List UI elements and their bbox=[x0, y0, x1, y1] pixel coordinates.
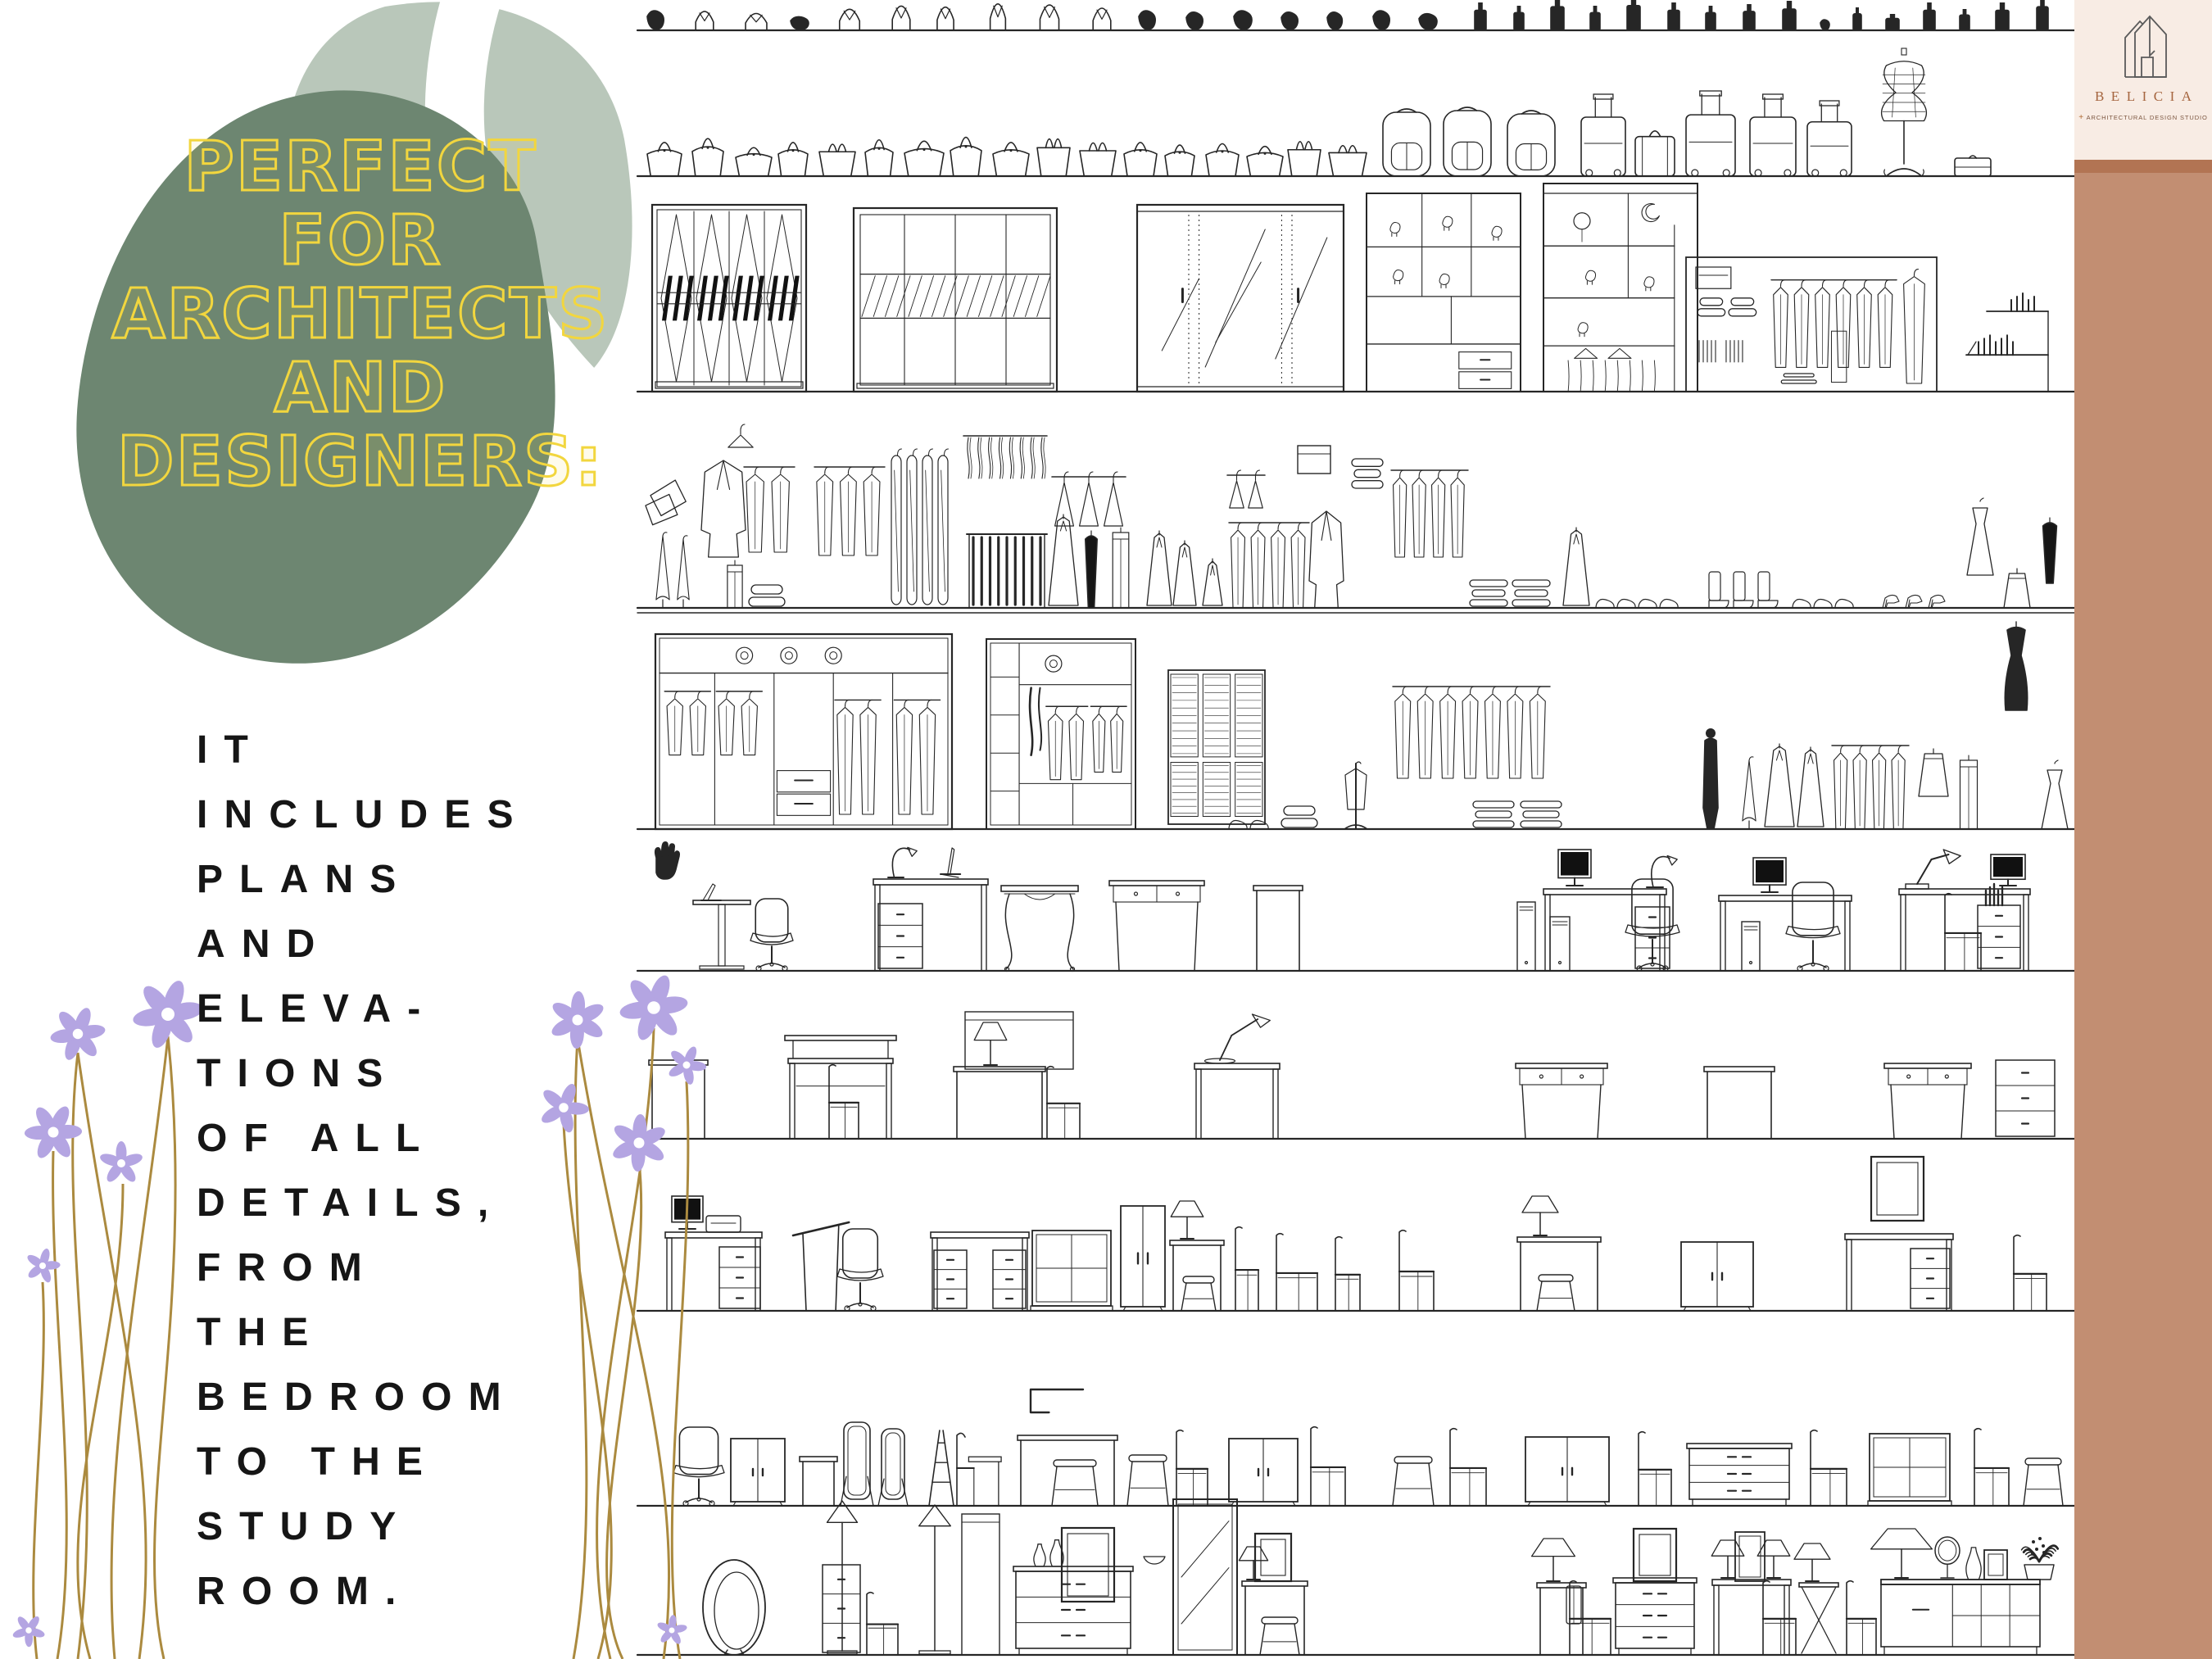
body-text-line: THE bbox=[197, 1300, 530, 1365]
flower bbox=[11, 1615, 46, 1648]
headline-line: FOR bbox=[86, 203, 635, 277]
body-text: ITINCLUDESPLANSANDELEVA-TIONSOF ALLDETAI… bbox=[197, 718, 530, 1624]
flower bbox=[549, 991, 606, 1049]
flower bbox=[656, 1615, 688, 1646]
body-text-line: PLANS bbox=[197, 847, 530, 912]
sidebar: BELICIA + ARCHITECTURAL DESIGN STUDIO bbox=[2074, 0, 2212, 1659]
body-text-line: FROM bbox=[197, 1235, 530, 1300]
house-icon bbox=[2074, 8, 2212, 82]
headline-line: DESIGNERS: bbox=[86, 424, 635, 498]
body-text-line: ROOM. bbox=[197, 1559, 530, 1624]
headline-line: AND bbox=[86, 351, 635, 424]
flower bbox=[610, 1114, 668, 1172]
logo-name: BELICIA bbox=[2074, 88, 2212, 105]
body-text-line: INCLUDES bbox=[197, 782, 530, 847]
body-text-line: TO THE bbox=[197, 1430, 530, 1494]
body-text-line: AND bbox=[197, 912, 530, 977]
flower bbox=[98, 1141, 143, 1185]
logo-tagline-text: ARCHITECTURAL DESIGN STUDIO bbox=[2087, 114, 2208, 121]
headline-line: PERFECT bbox=[86, 129, 635, 203]
body-text-line: OF ALL bbox=[197, 1106, 530, 1171]
body-text-line: ELEVA- bbox=[197, 977, 530, 1041]
flower bbox=[539, 1081, 590, 1134]
sidebar-divider bbox=[2074, 160, 2212, 173]
poster-root: PERFECTFORARCHITECTSANDDESIGNERS: ITINCL… bbox=[0, 0, 2212, 1659]
body-text-line: BEDROOM bbox=[197, 1365, 530, 1430]
logo-tagline: + ARCHITECTURAL DESIGN STUDIO bbox=[2074, 113, 2212, 122]
plus-icon: + bbox=[2078, 113, 2084, 122]
body-text-line: TIONS bbox=[197, 1041, 530, 1106]
flower bbox=[667, 1045, 707, 1086]
body-text-line: IT bbox=[197, 718, 530, 782]
body-text-line: STUDY bbox=[197, 1494, 530, 1559]
headline: PERFECTFORARCHITECTSANDDESIGNERS: bbox=[86, 129, 635, 498]
logo-block: BELICIA + ARCHITECTURAL DESIGN STUDIO bbox=[2074, 0, 2212, 160]
headline-line: ARCHITECTS bbox=[86, 277, 635, 351]
body-text-line: DETAILS, bbox=[197, 1171, 530, 1235]
